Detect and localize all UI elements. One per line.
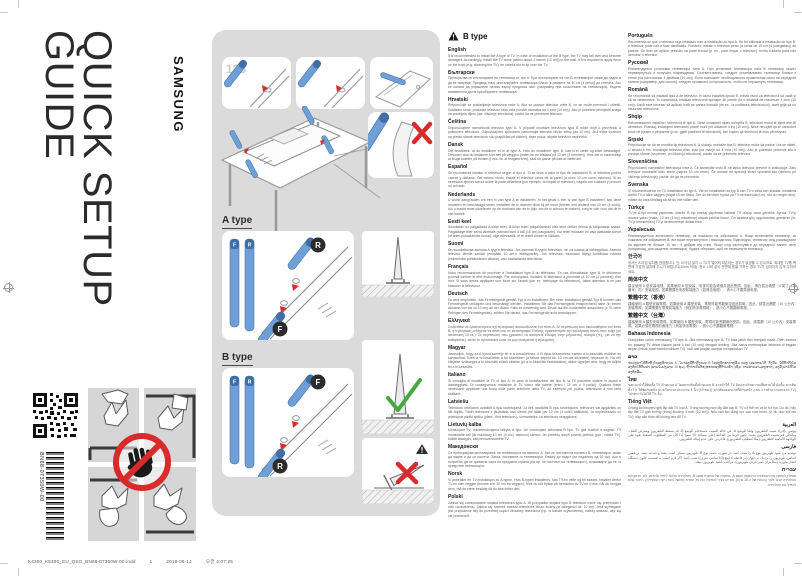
language-name: Polski (448, 494, 621, 501)
language-notice-text: Chúng tôi khuyến nghị lắp đặt TV loại A.… (628, 406, 796, 419)
language-name: Shqip (628, 114, 796, 121)
language-notice-text: Nous recommandons de procéder à l'instal… (448, 271, 621, 289)
language-notice-text: Montuojant TV, rekomenduojama laikytis A… (448, 428, 621, 441)
language-section: ItalianoSi consiglia di installare la TV… (448, 372, 621, 396)
language-section: NederlandsU wordt aangeraden om een tv v… (448, 192, 621, 216)
language-name: Українська (628, 227, 796, 234)
language-name: Nederlands (448, 192, 621, 199)
language-notice-text: Javasoljuk, hogy az A típust szerelje fe… (448, 352, 621, 370)
language-section: FrançaisNous recommandons de procéder à … (448, 264, 621, 288)
leg-seated-step-illustration (370, 57, 433, 109)
leg-insert-step-illustration (296, 57, 365, 109)
language-notice-text: يوصى بإجراء تثبيت التلفزيون وفقًا للوضع … (628, 429, 796, 442)
language-section: ShqipRekomandohet instalimi i televizori… (628, 114, 796, 134)
a-type-profile-box (362, 231, 434, 297)
language-name: Türkçe (628, 205, 796, 212)
wrong-insertion-callout (368, 112, 434, 178)
document-code: BN68-07350W-00 (38, 452, 44, 502)
language-section: ລາວຂໍແນະນຳໃຫ້ຕິດຕັ້ງໂທລະທັດແບບ A. ໃນກໍລະ… (628, 354, 796, 374)
language-section: EnglishIt is recommended to install the … (448, 47, 621, 67)
language-notice-text: On suositeltavaa asentaa A-tyypin televi… (448, 248, 621, 261)
leg-insert-step-illustration: 123 (222, 57, 291, 109)
b-type-tipover-illustration (362, 438, 434, 504)
language-section: 한국어당사는 A 타입 설치를 권장합니다. 단, B 타입 설치 시 TV가 … (628, 254, 796, 274)
language-name: 繁體中文（台灣） (628, 313, 796, 320)
language-section: УкраїнськаРекомендується встановити теле… (628, 227, 796, 251)
b-type-correct-profile (362, 340, 434, 434)
notice-column-right: PortuguêsRecomenda-se que o televisor se… (628, 33, 796, 490)
language-name: ລາວ (628, 354, 796, 361)
b-type-heading: B type (222, 353, 253, 366)
notice-column-left: B type EnglishIt is recommended to insta… (448, 31, 621, 521)
crop-mark (18, 568, 19, 576)
language-section: RomânăSe recomandă să instalați tipul A … (628, 87, 796, 111)
language-name: Svenska (628, 182, 796, 189)
language-notice-text: Preporučuje se postavljanje televizora v… (448, 103, 621, 116)
language-notice-text: Рекомендуется установка телевизора типа … (628, 67, 796, 85)
language-notice-text: Се препорачува инсталирање на телевизоро… (448, 451, 621, 469)
print-info-line: K4300_K5300_EU_QSG_BN68-07350W-00.indd12… (28, 559, 247, 565)
language-notice-text: Doporučujeme namontovat televizor typu A… (448, 126, 621, 139)
language-name: Ελληνικά (448, 318, 621, 325)
language-name: Português (628, 33, 796, 40)
language-name: Italiano (448, 372, 621, 379)
language-name: Norsk (448, 471, 621, 478)
language-section: ČeštinaDoporučujeme namontovat televizor… (448, 119, 621, 139)
step-panel-3 (370, 57, 433, 109)
b-type-correct-box (362, 340, 434, 434)
barcode (46, 452, 64, 540)
language-name: Bahasa Indonesia (628, 331, 796, 338)
language-section: SlovenščinaPriporočamo namestitev televi… (628, 159, 796, 179)
language-name: Lietuvių kalba (448, 422, 621, 429)
language-notice-text: Es wird empfohlen, das Fernsehgerät gemä… (448, 298, 621, 316)
b-type-panel: F R F R (222, 368, 354, 477)
red-cross-icon (398, 464, 416, 482)
language-section: SvenskaVi rekommenderar en TV-installati… (628, 182, 796, 202)
wrong-insertion-illustration (368, 112, 434, 178)
language-name: Čeština (448, 119, 621, 126)
language-section: DeutschEs wird empfohlen, das Fernsehger… (448, 291, 621, 315)
notice-header: B type (448, 31, 621, 41)
language-notice-text: Soovitatav on paigaldada A-tüüpi teler. … (448, 225, 621, 238)
registration-mark-icon (4, 283, 13, 292)
language-notice-text: 建议使用 A 型安装电视。如果使用 B 型安装，电视可能会倾倒并因此受损。因此，… (628, 284, 796, 293)
language-name: Latviešu (448, 399, 621, 406)
language-notice-text: TV'ye A tipi montaj yapılması önerilir. … (628, 211, 796, 224)
language-notice-text: 建議使用 A 類型安裝電視。如果使用 B 類型安裝，電視可能會翻倒並因此損壞。因… (628, 302, 796, 311)
rear-badge-label: R (277, 462, 283, 471)
language-name: Français (448, 264, 621, 271)
language-notice-text: Det anbefales, at du installerer et tv a… (448, 149, 621, 162)
crop-mark (794, 12, 802, 13)
language-notice-text: ຂໍແນະນຳໃຫ້ຕິດຕັ້ງໂທລະທັດແບບ A. ໃນກໍລະນີຕ… (628, 361, 796, 374)
language-section: РусскийРекомендуется установка телевизор… (628, 60, 796, 84)
page-title: QUICK SETUPGUIDE (40, 30, 116, 307)
language-name: English (448, 47, 621, 54)
language-section: 繁體中文（香港）建議使用 A 類型安裝電視。如果使用 B 類型安裝，電視可能會翻… (628, 295, 796, 311)
language-name: Eesti keel (448, 219, 621, 226)
red-cross-icon (414, 124, 430, 142)
language-section: TürkçeTV'ye A tipi montaj yapılması öner… (628, 205, 796, 225)
language-section: Bahasa IndonesiaDianjurkan untuk memasan… (628, 331, 796, 351)
language-name: Български (448, 70, 621, 77)
language-notice-text: U wordt aangeraden om een tv van type A … (448, 198, 621, 216)
language-notice-text: 建議使用 A 類型安裝電視。如果使用 B 類型安裝，電視可能會翻倒而受損。因此，… (628, 320, 796, 329)
language-name: Srpski (628, 137, 796, 144)
language-name: Magyar (448, 345, 621, 352)
language-section: PolskiZaleca się zamocowanie stojaka tel… (448, 494, 621, 518)
language-section: SuomiOn suositeltavaa asentaa A-tyypin t… (448, 241, 621, 261)
front-badge-label: F (316, 378, 321, 387)
language-section: ไทยขอแนะนำให้ติดตั้ง TV ด้วยแบบ A โดยหาก… (628, 377, 796, 397)
language-name: العربية (628, 422, 796, 429)
language-section: SrpskiPreporučuje se da se montira tip t… (628, 137, 796, 157)
language-section: EspañolSe recomienda instalar el televis… (448, 164, 621, 188)
quick-setup-guide-page: SAMSUNG QUICK SETUPGUIDE 123 (0, 0, 802, 576)
language-section: עבריתמומלץ להתקין את הטלוויזיה בהתקנה מס… (628, 467, 796, 487)
leg-rear-label: R (248, 380, 252, 386)
print-time: 오전 4:07:25 (206, 559, 233, 564)
language-section: 简体中文建议使用 A 型安装电视。如果使用 B 型安装，电视可能会倾倒并因此受损… (628, 277, 796, 293)
language-notice-text: Priporočamo namestitev televizorja vrste… (628, 166, 796, 179)
print-page-number: 1 (150, 559, 153, 564)
language-notice-text: Preporučuje se da se montira tip televiz… (628, 143, 796, 156)
language-notice-text: Vi rekommenderar en TV-installation av t… (628, 189, 796, 202)
language-notice-text: Рекомендується встановити телевізор, як … (628, 234, 796, 252)
language-notice-text: Vi anbefaler en TV-installasjon av A-typ… (448, 478, 621, 491)
language-name: Deutsch (448, 291, 621, 298)
language-name: Suomi (448, 241, 621, 248)
language-notice-text: 당사는 A 타입 설치를 권장합니다. 단, B 타입 설치 시 TV가 떨어져… (628, 261, 796, 274)
language-name: Español (448, 164, 621, 171)
language-section: МакедонскиСе препорачува инсталирање на … (448, 444, 621, 468)
language-name: 简体中文 (628, 277, 796, 284)
crop-mark (18, 0, 19, 8)
language-name: עברית (628, 467, 796, 474)
print-file-name: K4300_K5300_EU_QSG_BN68-07350W-00.indd (28, 559, 136, 564)
language-section: فارسیتوصیه می شود تلویزیون نوع A را نصب … (628, 444, 796, 464)
language-notice-text: Препоръчва се инсталиране на телевизор о… (448, 76, 621, 94)
crop-mark (794, 563, 802, 564)
language-section: PortuguêsRecomenda-se que o televisor se… (628, 33, 796, 57)
page-title-line1: QUICK SETUP (75, 30, 119, 307)
language-notice-text: Se recomandă să instalați tipul A de tel… (628, 94, 796, 112)
language-notice-text: توصیه می شود تلویزیون نوع A را نصب کنید.… (628, 451, 796, 464)
language-section: LatviešuTelevizoru ieteicams uzstādīt A … (448, 399, 621, 419)
language-name: 한국어 (628, 254, 796, 261)
notice-heading: B type (463, 32, 487, 41)
crop-mark (783, 568, 784, 576)
language-notice-text: Zaleca się zamocowanie stojaka telewizor… (448, 501, 621, 519)
a-type-assembly-illustration: F R R F (222, 231, 354, 340)
language-section: العربيةيوصى بإجراء تثبيت التلفزيون وفقًا… (628, 422, 796, 442)
no-touch-screen-warning-illustration (88, 388, 196, 546)
front-badge-label: F (278, 325, 283, 334)
language-name: Tiếng Việt (628, 399, 796, 406)
b-type-tipover-box (362, 438, 434, 504)
language-name: Română (628, 87, 796, 94)
language-section: NorskVi anbefaler en TV-installasjon av … (448, 471, 621, 491)
language-section: MagyarJavasoljuk, hogy az A típust szere… (448, 345, 621, 369)
language-notice-text: Se recomienda instalar el televisor segú… (448, 171, 621, 189)
language-notice-text: Dianjurkan untuk memasang TV tipe A. Jik… (628, 338, 796, 351)
b-type-assembly-illustration: F R F R (222, 368, 354, 477)
language-notice-text: Televizoru ieteicams uzstādīt A tipa nov… (448, 406, 621, 419)
language-name: 繁體中文（香港） (628, 295, 796, 302)
leg-front-label: F (233, 380, 236, 386)
language-notice-text: Recomenda-se que o televisor seja instal… (628, 40, 796, 58)
step-panel-2 (296, 57, 365, 109)
a-type-panel: F R R F (222, 231, 354, 340)
crop-mark (0, 12, 8, 13)
language-name: فارسی (628, 444, 796, 451)
language-name: Македонски (448, 444, 621, 451)
warning-triangle-icon (448, 31, 459, 41)
language-notice-text: ขอแนะนำให้ติดตั้ง TV ด้วยแบบ A โดยหากติด… (628, 383, 796, 396)
language-notice-text: Si consiglia di installare la TV di tipo… (448, 379, 621, 397)
language-section: Lietuvių kalbaMontuojant TV, rekomenduoj… (448, 422, 621, 442)
language-name: Hrvatski (448, 97, 621, 104)
crop-mark (783, 0, 784, 8)
warning-triangle-icon (416, 444, 428, 454)
language-notice-text: Rekomandohet instalimi i televizorit të … (628, 121, 796, 134)
leg-rear-label: R (248, 243, 252, 249)
language-name: Dansk (448, 142, 621, 149)
language-section: БългарскиПрепоръчва се инсталиране на те… (448, 70, 621, 94)
language-section: DanskDet anbefales, at du installerer et… (448, 142, 621, 162)
print-date: 2016-06-14 (166, 559, 192, 564)
crop-mark (0, 563, 8, 564)
language-section: HrvatskiPreporučuje se postavljanje tele… (448, 97, 621, 117)
rear-badge-label: R (315, 241, 321, 250)
language-notice-text: It is recommended to install the A type … (448, 54, 621, 67)
language-notice-text: מומלץ להתקין את הטלוויזיה בהתקנה מסוג A.… (628, 474, 796, 487)
samsung-logo: SAMSUNG (171, 56, 186, 133)
prohibition-icon (116, 436, 168, 488)
step-panel-1: 123 (222, 57, 291, 109)
language-notice-text: Συνιστάται να εγκαταστήσετε την τηλεόρασ… (448, 325, 621, 343)
a-type-standing-profile (362, 231, 434, 297)
qr-code (33, 393, 78, 438)
language-section: ΕλληνικάΣυνιστάται να εγκαταστήσετε την … (448, 318, 621, 342)
leg-front-label: F (233, 243, 236, 249)
assembly-diagram-panel: 123 (212, 30, 440, 516)
a-type-heading: A type (222, 216, 252, 229)
language-name: Русский (628, 60, 796, 67)
language-section: 繁體中文（台灣）建議使用 A 類型安裝電視。如果使用 B 類型安裝，電視可能會翻… (628, 313, 796, 329)
language-section: Eesti keelSoovitatav on paigaldada A-tüü… (448, 219, 621, 239)
page-title-line2: GUIDE (37, 30, 81, 159)
language-section: Tiếng ViệtChúng tôi khuyến nghị lắp đặt … (628, 399, 796, 419)
